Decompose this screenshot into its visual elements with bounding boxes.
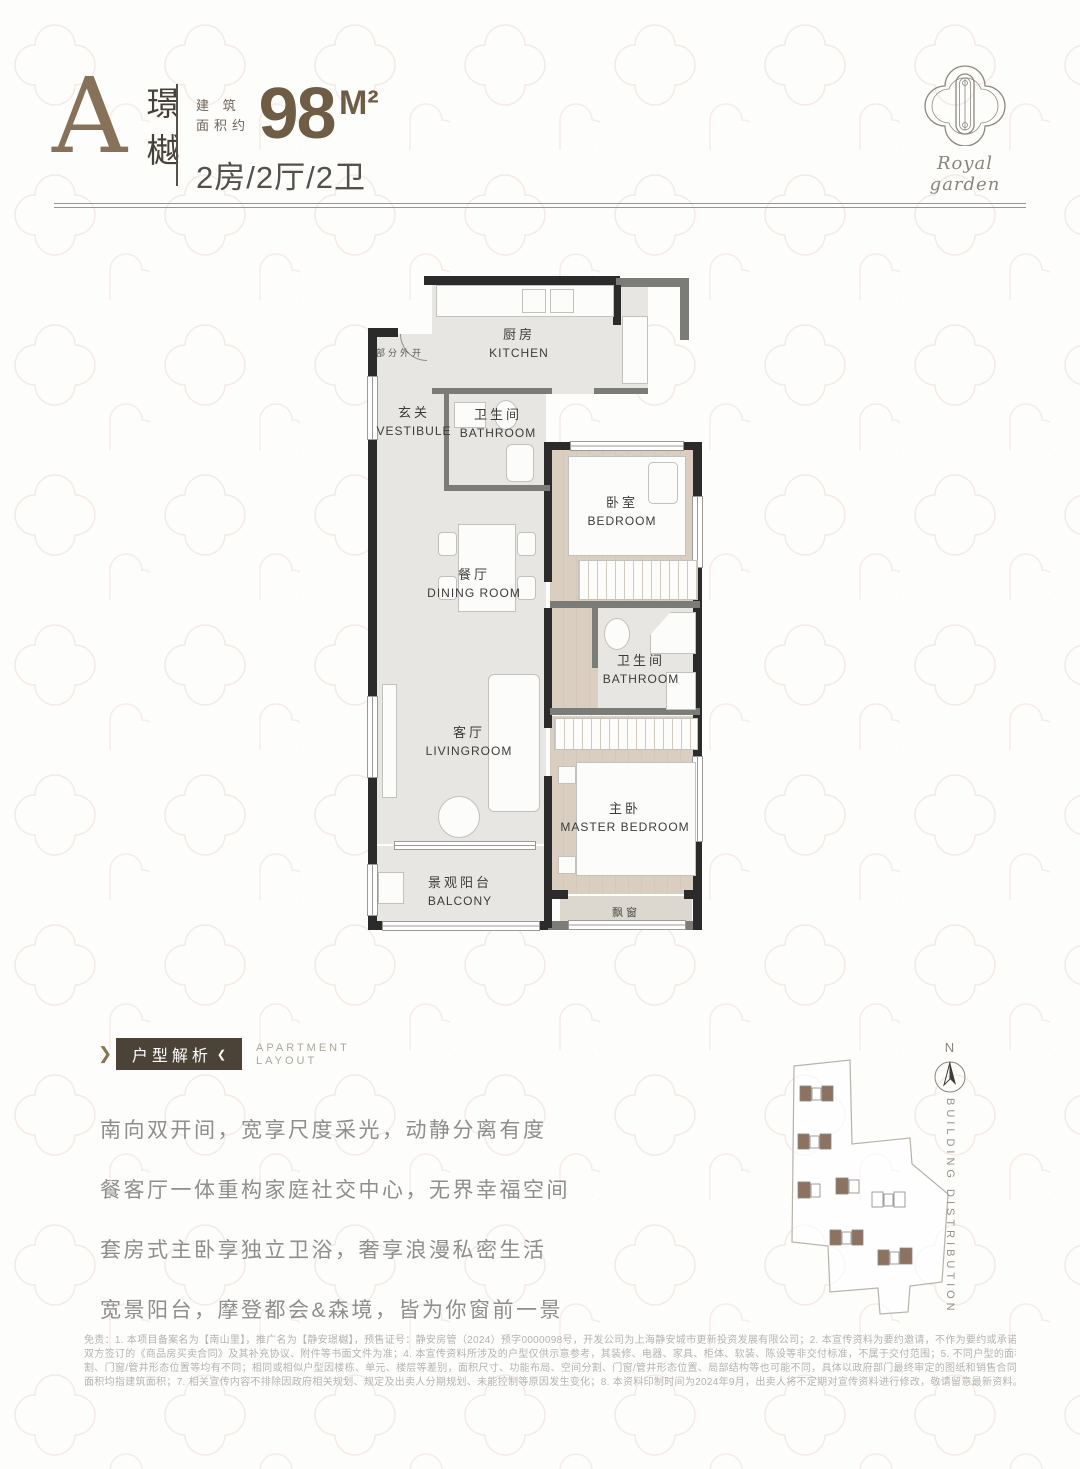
building-6: [872, 1192, 905, 1207]
chair: [438, 532, 457, 556]
wall: [594, 388, 648, 394]
wall: [680, 278, 689, 340]
section-subtitle: APARTMENT LAYOUT: [256, 1042, 350, 1068]
bay-window-note: 飘窗: [612, 904, 640, 920]
building-4: [836, 1178, 859, 1194]
compass: N: [928, 1040, 972, 1104]
analysis-line: 餐客厅一体重构家庭社交中心，无界幸福空间: [100, 1174, 570, 1204]
disclaimer-line: 割、门窗/管井形态位置等均有不同；相同或相似户型因楼栋、单元、楼层等差别，面积尺…: [84, 1362, 1016, 1376]
building-2: [798, 1134, 831, 1149]
room-label-balcony: 景观阳台 BALCONY: [400, 872, 520, 908]
layout-spec: 2房/2厅/2卫: [196, 152, 366, 197]
analysis-line: 宽景阳台，摩登都会&森境，皆为你窗前一景: [100, 1294, 563, 1324]
analysis-line: 套房式主卧享独立卫浴，奢享浪漫私密生活: [100, 1234, 547, 1264]
badge-left-chevron-icon: ❯: [98, 1044, 112, 1064]
header-divider-vertical: [176, 84, 178, 186]
nightstand: [558, 856, 576, 874]
wall: [432, 388, 552, 394]
quatrefoil-logo-icon: [900, 62, 1030, 146]
room-label-master: 主卧 MASTER BEDROOM: [554, 798, 696, 834]
wall: [550, 890, 568, 899]
room-label-dining: 餐厅 DINING ROOM: [414, 564, 534, 600]
area-unit: M²: [339, 84, 379, 123]
area-block: 建 筑面积约 98 M²: [196, 82, 379, 146]
bath2-toilet: [604, 618, 630, 650]
building-distribution-label: BUILDING DISTRIBUTION: [944, 1098, 956, 1315]
master-wardrobe: [554, 718, 698, 750]
compass-icon: [928, 1055, 972, 1099]
wall: [684, 890, 700, 899]
brand-script: Royal garden: [900, 153, 1030, 195]
room-label-bedroom: 卧室 BEDROOM: [562, 492, 682, 528]
bay-window-glass: [568, 920, 686, 930]
wall: [616, 278, 688, 287]
wall: [613, 285, 621, 325]
room-label-kitchen: 厨房 KITCHEN: [464, 324, 574, 360]
badge-right-chevron-icon: ❮: [217, 1048, 226, 1061]
room-label-bathroom2: 卫生间 BATHROOM: [586, 650, 696, 686]
room-label-bathroom1: 卫生间 BATHROOM: [448, 404, 548, 440]
window: [692, 496, 703, 568]
building-5: [830, 1230, 863, 1245]
wall: [544, 776, 552, 928]
brand-logo: Royal garden: [900, 62, 1030, 195]
disclaimer-line: 免责：1. 本项目备案名为【南山里】，推广名为【静安璟樾】，预售证号：静安房管（…: [84, 1334, 1016, 1348]
disclaimer-line: 面积均指建筑面积；7. 相关宣传内容不排除因政府相关规划、规定及出卖人分期规划、…: [84, 1376, 1016, 1390]
floor-plan: 部分外开 厨房 KITCHEN 玄关 VESTIBULE 卫生间 BATHROO…: [354, 276, 726, 952]
balcony-glass: [382, 921, 540, 931]
window: [570, 441, 684, 451]
window: [367, 696, 378, 778]
nightstand: [558, 766, 576, 784]
bath1-washer: [506, 444, 534, 482]
wall: [550, 601, 700, 608]
disclaimer-line: 双方签订的《商品房买卖合同》及其补充协议、附件等书面文件为准；4. 本宣传资料所…: [84, 1348, 1016, 1362]
building-3: [798, 1182, 820, 1198]
sliding-door: [394, 841, 536, 850]
wall: [424, 276, 620, 285]
analysis-line: 南向双开间，宽享尺度采光，动静分离有度: [100, 1114, 547, 1144]
door-note: 部分外开: [376, 346, 424, 359]
chair: [517, 532, 536, 556]
wardrobe: [578, 560, 698, 600]
coffee-table: [438, 796, 480, 838]
room-label-living: 客厅 LIVINGROOM: [409, 722, 529, 758]
section-badge: 户型解析❮: [116, 1038, 242, 1070]
compass-n-label: N: [928, 1040, 972, 1055]
area-prefix: 建 筑面积约: [196, 96, 250, 136]
wall: [444, 485, 550, 491]
header-rule: [54, 203, 1026, 208]
wall: [544, 442, 552, 582]
tv-cabinet: [382, 684, 397, 798]
building-1: [800, 1086, 833, 1101]
fridge: [622, 316, 648, 384]
stove-icon: [522, 289, 546, 313]
sink-icon: [550, 289, 574, 313]
window: [367, 864, 378, 916]
area-value: 98: [258, 82, 334, 146]
plan-letter: A: [52, 64, 127, 168]
